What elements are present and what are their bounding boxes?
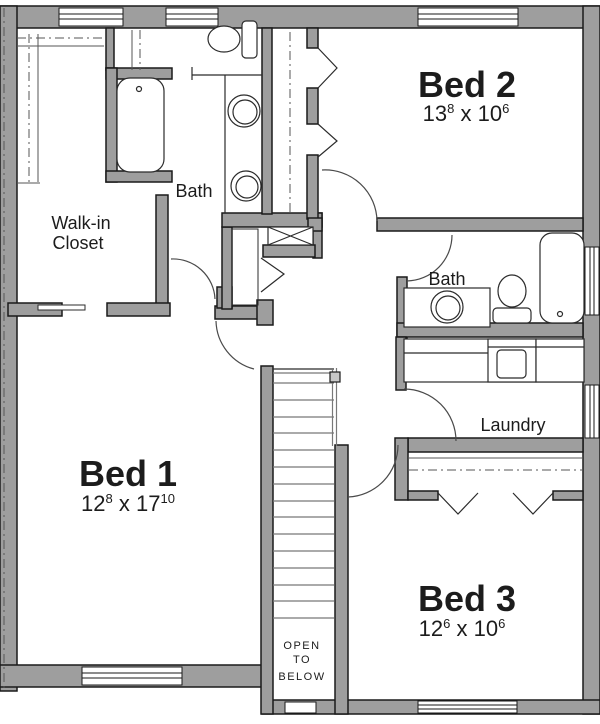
room-dim-bed3: 126 x 106 bbox=[419, 616, 506, 641]
pocket-door-icon bbox=[38, 305, 85, 310]
stair-landing-opening bbox=[285, 702, 316, 713]
window bbox=[585, 385, 599, 438]
wall-bed3-north bbox=[408, 438, 583, 452]
wall-chase-south bbox=[263, 245, 315, 257]
wall-segment bbox=[106, 28, 114, 70]
stair-newel-post bbox=[330, 372, 340, 382]
wall-bed2closet-stub bbox=[307, 28, 318, 48]
floor-plan-page: Bed 1 128 x 1710 Bed 2 138 x 106 Bed 3 1… bbox=[0, 0, 600, 719]
wall-tub-bottom bbox=[106, 171, 172, 182]
window bbox=[82, 667, 182, 685]
wall-left-party bbox=[0, 6, 17, 691]
wall-bed2-south bbox=[377, 218, 583, 231]
open-to-below-line1: OPEN bbox=[283, 640, 320, 652]
bathtub-icon bbox=[117, 78, 164, 172]
window bbox=[59, 8, 123, 26]
room-label-walkin-closet-line2: Closet bbox=[52, 233, 103, 253]
wall-post bbox=[257, 300, 273, 325]
window bbox=[585, 247, 599, 315]
wall-vanity-east bbox=[262, 28, 272, 214]
wall-stair-west bbox=[261, 366, 273, 714]
room-dim-bed2: 138 x 106 bbox=[423, 101, 510, 126]
wall-bed2closet-stub bbox=[307, 88, 318, 124]
washer-icon bbox=[488, 339, 536, 382]
room-label-bed1: Bed 1 bbox=[79, 453, 177, 494]
chase-x-box bbox=[268, 227, 313, 245]
wall-hallcloset-west bbox=[222, 227, 232, 309]
room-label-laundry: Laundry bbox=[480, 415, 545, 435]
room-label-bed3: Bed 3 bbox=[418, 578, 516, 619]
window bbox=[418, 701, 517, 713]
wall-bed3closet-front bbox=[408, 491, 438, 500]
open-to-below-line2: TO bbox=[293, 654, 311, 666]
wall-bed3closet-front bbox=[553, 491, 583, 500]
bathtub-icon bbox=[540, 233, 584, 323]
wall-post bbox=[395, 438, 408, 500]
room-label-bath-hall: Bath bbox=[428, 269, 465, 289]
dryer-icon bbox=[536, 339, 584, 382]
room-label-walkin-closet-line1: Walk-in bbox=[51, 213, 110, 233]
wall-bed2closet-stub bbox=[307, 155, 318, 219]
window bbox=[418, 8, 518, 26]
room-label-bath-upper: Bath bbox=[175, 181, 212, 201]
wall-closet-south-east bbox=[107, 303, 170, 316]
wall-tub-left bbox=[106, 68, 117, 182]
wall-closet-east bbox=[156, 195, 168, 309]
sink-icon bbox=[231, 171, 261, 201]
wall-stair-east bbox=[335, 445, 348, 714]
room-label-bed2: Bed 2 bbox=[418, 64, 516, 105]
floor-plan: Bed 1 128 x 1710 Bed 2 138 x 106 Bed 3 1… bbox=[0, 0, 600, 719]
sink-icon bbox=[431, 291, 463, 323]
sink-icon bbox=[228, 95, 260, 127]
window bbox=[166, 8, 218, 26]
wall-right bbox=[583, 6, 600, 714]
open-to-below-line3: BELOW bbox=[278, 671, 325, 683]
